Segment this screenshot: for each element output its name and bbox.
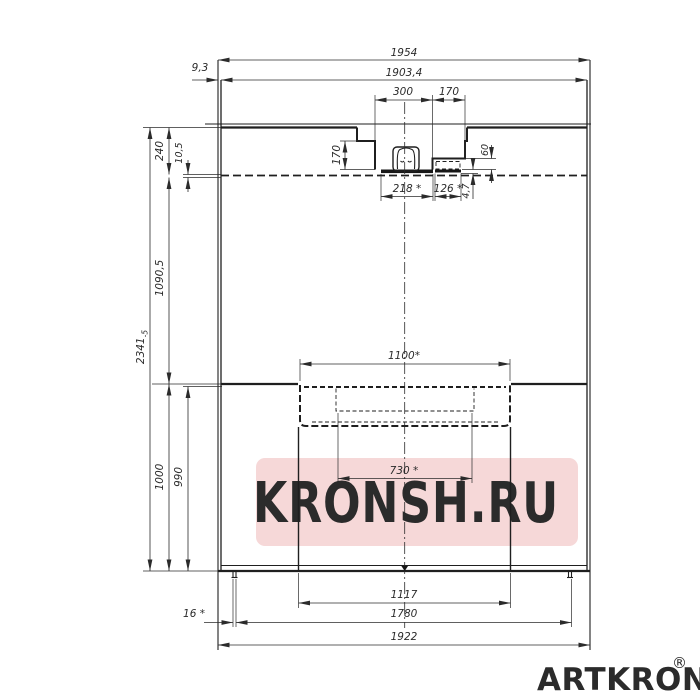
dimension-lines (150, 60, 590, 645)
registered-mark: ® (672, 654, 687, 672)
dim-tray-width: 1100* (388, 350, 420, 362)
dim-tray-inner-width: 730 * (390, 465, 419, 477)
center-line (401, 102, 408, 628)
dim-top-flange: 240 (154, 141, 166, 161)
dim-overall-width: 1954 (391, 47, 418, 59)
dim-bottom-width: 1922 (391, 631, 418, 643)
technical-drawing: KRONSH.RU (0, 0, 700, 700)
brand-logo: ARTKRON ® (537, 654, 700, 698)
dim-foot-offset: 16 * (183, 608, 205, 620)
top-notch (357, 128, 467, 174)
dim-total-height: 2341-5 (135, 330, 150, 364)
dim-lower-height: 1000 (154, 463, 166, 490)
dim-lower-inner-height: 990 (173, 467, 185, 487)
dim-body-width: 1903,4 (386, 67, 423, 79)
dim-notch-width: 300 (393, 86, 413, 98)
dim-top-lip: 10,5 (174, 142, 185, 163)
dim-recess-width: 170 (439, 86, 459, 98)
dim-notch-depth: 170 (331, 145, 343, 165)
dim-plate-gap: 4,7 (461, 183, 472, 198)
dim-upper-height: 1090,5 (154, 259, 166, 296)
dim-recess-depth: 60 (480, 144, 491, 156)
dim-feet-span: 1780 (391, 608, 418, 620)
dim-base-width: 1117 (391, 589, 418, 601)
power-connector-icon (393, 147, 419, 171)
dim-plate2-width: 126 * (434, 183, 463, 195)
dim-plate-width: 218 * (393, 183, 422, 195)
dim-left-offset: 9,3 (192, 62, 209, 74)
